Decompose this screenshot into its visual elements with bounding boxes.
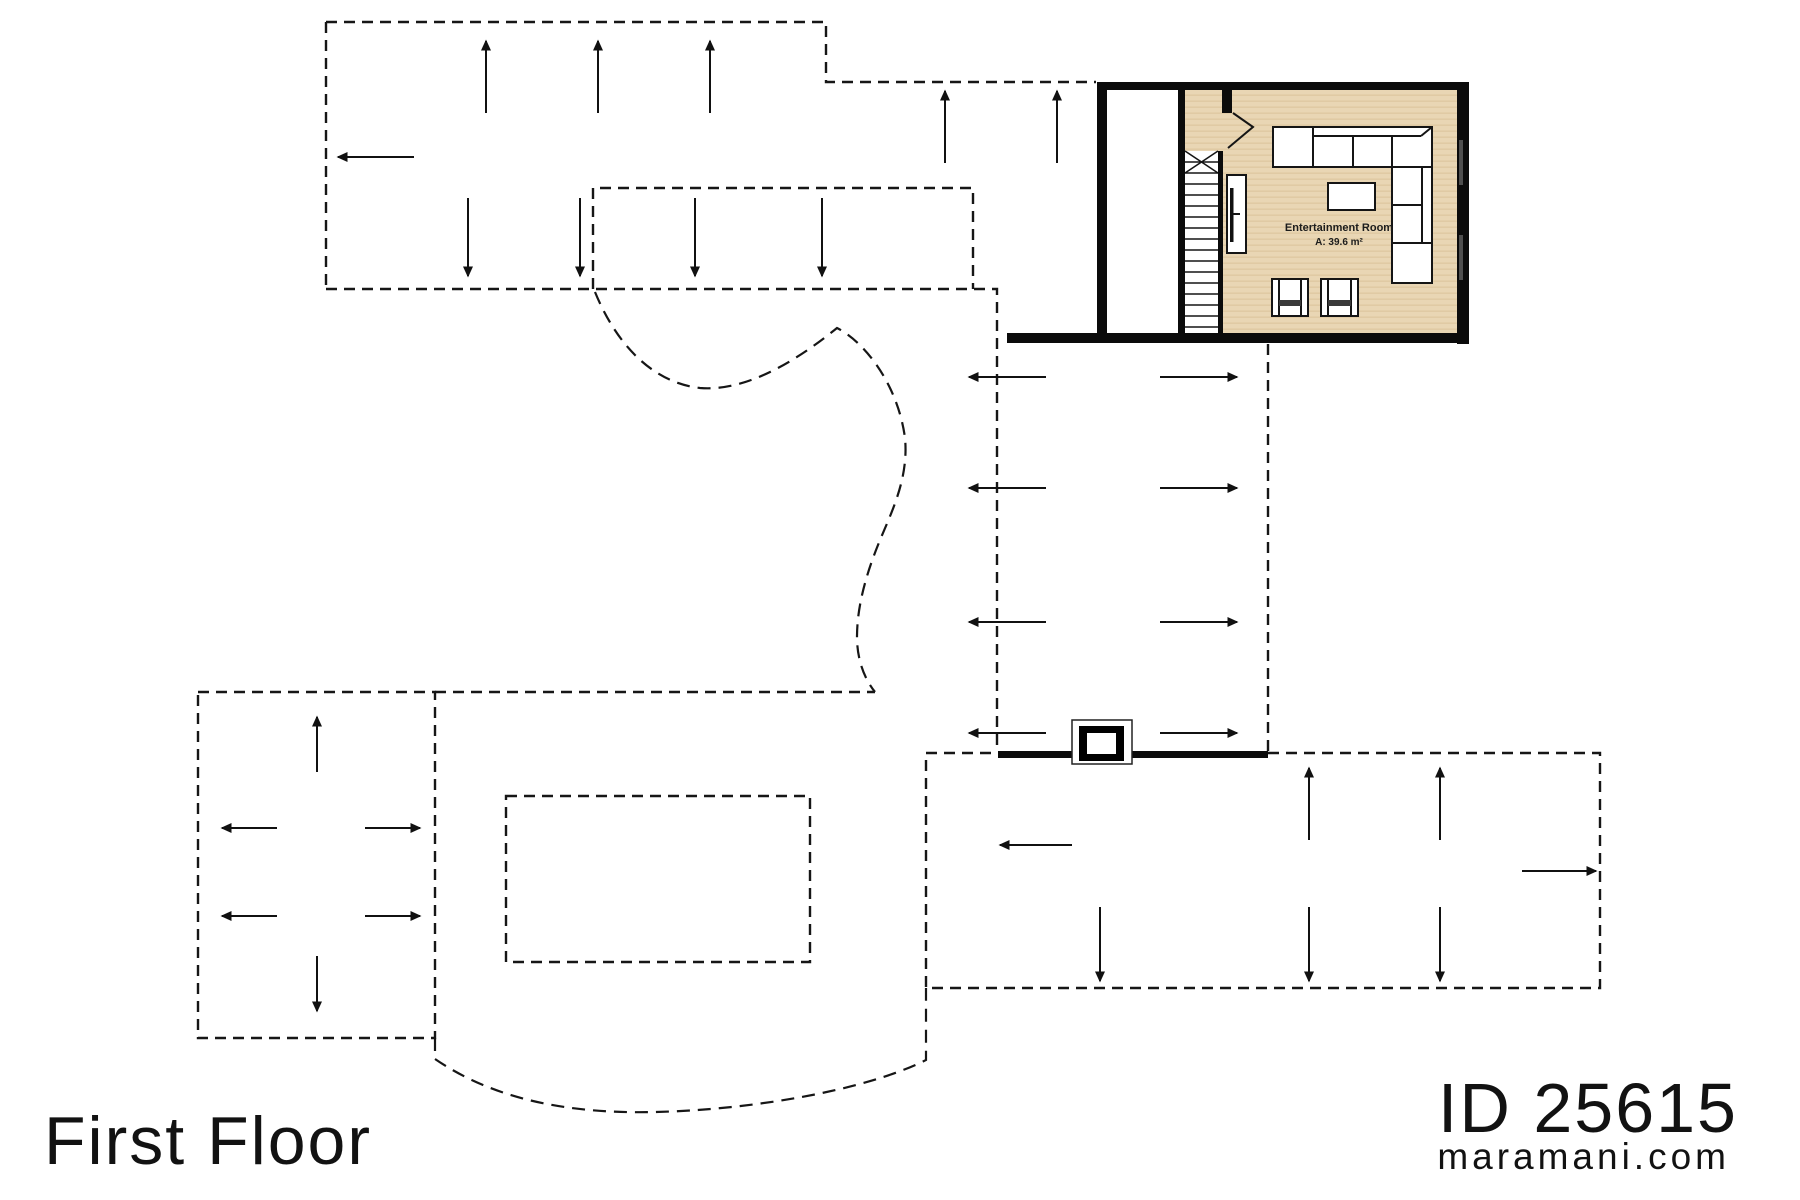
floor-plan-drawing: Entertainment Room A: 39.6 m²	[0, 0, 1800, 1200]
wall-left	[1097, 82, 1107, 342]
wall-bottom	[1007, 333, 1469, 343]
room-entertainment: Entertainment Room A: 39.6 m²	[1007, 82, 1469, 344]
void-shaft	[1107, 90, 1178, 333]
door-jamb	[1222, 90, 1232, 113]
wall-stair-right	[1218, 151, 1223, 333]
staircase	[1185, 151, 1218, 333]
roof-outline-lower-left	[198, 692, 926, 1112]
roof-outline-curve	[595, 292, 906, 692]
roof-outline-lower-right	[926, 753, 1600, 988]
plan-title: First Floor	[44, 1102, 372, 1180]
wall-right	[1457, 82, 1469, 344]
armchair	[1321, 279, 1358, 316]
armchair	[1272, 279, 1308, 316]
window-icon	[1459, 235, 1463, 280]
wall-stair-left	[1178, 90, 1185, 333]
brand-website: maramani.com	[1437, 1136, 1730, 1178]
room-area-label: A: 39.6 m²	[1315, 237, 1363, 248]
coffee-table	[1328, 183, 1375, 210]
slope-arrows-upper-left	[338, 41, 1057, 276]
tv-screen	[1230, 188, 1234, 242]
lower-wall	[998, 720, 1268, 764]
slope-arrows-corridor	[969, 377, 1237, 733]
wall-top	[1097, 82, 1469, 90]
chimney	[1072, 720, 1132, 764]
roof-outline-upper-left	[326, 22, 1096, 751]
roof-outline-center-rect	[506, 796, 810, 962]
slope-arrows-lower-right	[1000, 768, 1596, 981]
slope-arrows-lower-left	[222, 717, 420, 1011]
tv-console	[1227, 175, 1246, 253]
window-icon	[1459, 140, 1463, 185]
room-name-label: Entertainment Room	[1285, 222, 1393, 234]
floor-plan: Entertainment Room A: 39.6 m² First Floo…	[0, 0, 1800, 1200]
